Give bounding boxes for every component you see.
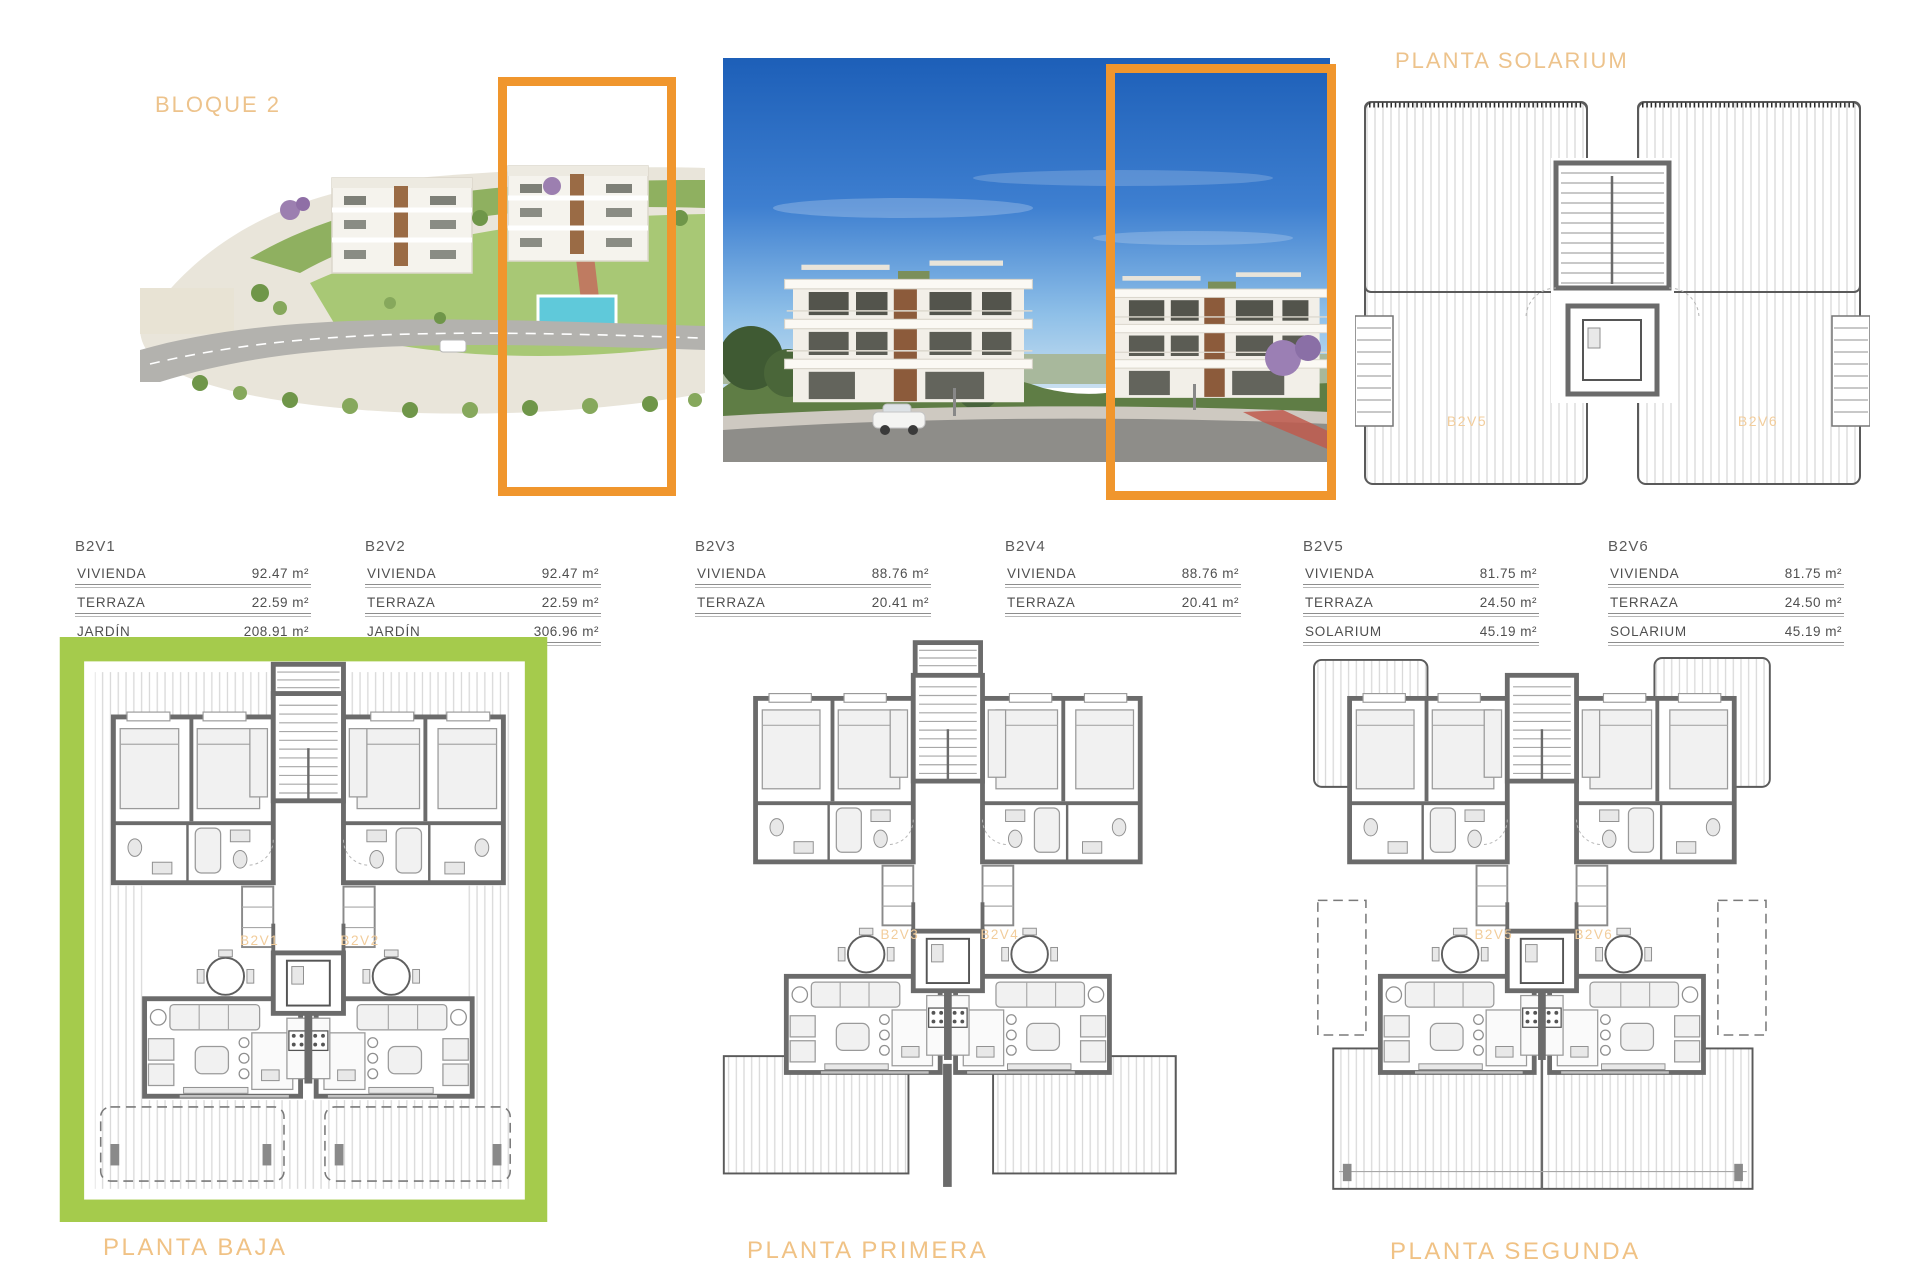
table-row: TERRAZA 22.59 m²	[75, 591, 311, 614]
row-value: 92.47 m²	[252, 566, 309, 581]
open-terrace-outline	[1718, 900, 1766, 1035]
row-label: TERRAZA	[1305, 595, 1374, 610]
unit-table-b2v4: B2V4 VIVIENDA 88.76 m² TERRAZA 20.41 m²	[1005, 538, 1241, 620]
unit-name: B2V4	[1005, 538, 1241, 555]
table-row: VIVIENDA 88.76 m²	[1005, 562, 1241, 585]
planta-baja-caption: PLANTA BAJA	[103, 1234, 287, 1262]
unit-label: B2V6	[1575, 927, 1614, 942]
unit-label: B2V3	[880, 927, 919, 942]
table-row: TERRAZA 20.41 m²	[1005, 591, 1241, 614]
table-row: VIVIENDA 81.75 m²	[1608, 562, 1844, 585]
row-label: VIVIENDA	[697, 566, 766, 581]
unit-table-b2v3: B2V3 VIVIENDA 88.76 m² TERRAZA 20.41 m²	[695, 538, 931, 620]
unit-label: B2V2	[340, 933, 379, 948]
solarium-floor-plan: B2V5 B2V6	[1355, 88, 1870, 508]
unit-table-b2v1: B2V1 VIVIENDA 92.47 m² TERRAZA 22.59 m² …	[75, 538, 311, 649]
page: BLOQUE 2	[0, 0, 1920, 1280]
unit-table-b2v2: B2V2 VIVIENDA 92.47 m² TERRAZA 22.59 m² …	[365, 538, 601, 649]
table-row: TERRAZA 20.41 m²	[695, 591, 931, 614]
row-value: 22.59 m²	[252, 595, 309, 610]
unit-name: B2V3	[695, 538, 931, 555]
row-label: TERRAZA	[1610, 595, 1679, 610]
table-row: VIVIENDA 88.76 m²	[695, 562, 931, 585]
row-label: TERRAZA	[697, 595, 766, 610]
solarium-heading: PLANTA SOLARIUM	[1395, 48, 1629, 74]
unit-label: B2V1	[240, 933, 279, 948]
row-label: TERRAZA	[77, 595, 146, 610]
unit-label: B2V5	[1474, 927, 1513, 942]
planta-segunda-floor-plan: B2V5 B2V6	[1295, 633, 1885, 1210]
row-value: 81.75 m²	[1480, 566, 1537, 581]
row-label: TERRAZA	[367, 595, 436, 610]
unit-label: B2V6	[1738, 413, 1778, 429]
highlight-rect-site	[498, 77, 676, 496]
highlight-rect-photo	[1106, 64, 1336, 500]
row-label: VIVIENDA	[1610, 566, 1679, 581]
row-label: TERRAZA	[1007, 595, 1076, 610]
open-terrace-outline	[1318, 900, 1366, 1035]
planta-primera-caption: PLANTA PRIMERA	[747, 1237, 988, 1265]
unit-name: B2V2	[365, 538, 601, 555]
row-label: VIVIENDA	[1305, 566, 1374, 581]
row-label: VIVIENDA	[77, 566, 146, 581]
row-value: 88.76 m²	[1182, 566, 1239, 581]
table-row: TERRAZA 22.59 m²	[365, 591, 601, 614]
row-value: 20.41 m²	[1182, 595, 1239, 610]
planta-baja-floor-plan: B2V1 B2V2	[55, 637, 552, 1222]
unit-name: B2V1	[75, 538, 311, 555]
unit-label: B2V5	[1447, 413, 1487, 429]
table-row: VIVIENDA 92.47 m²	[365, 562, 601, 585]
planta-segunda-caption: PLANTA SEGUNDA	[1390, 1238, 1641, 1266]
row-value: 88.76 m²	[872, 566, 929, 581]
aerial-car	[440, 340, 466, 352]
table-row: VIVIENDA 92.47 m²	[75, 562, 311, 585]
row-label: VIVIENDA	[1007, 566, 1076, 581]
row-value: 22.59 m²	[542, 595, 599, 610]
row-value: 24.50 m²	[1480, 595, 1537, 610]
unit-name: B2V5	[1303, 538, 1539, 555]
table-row: TERRAZA 24.50 m²	[1608, 591, 1844, 614]
unit-label: B2V4	[980, 927, 1019, 942]
row-value: 24.50 m²	[1785, 595, 1842, 610]
planta-primera-floor-plan: B2V3 B2V4	[700, 633, 1190, 1210]
unit-name: B2V6	[1608, 538, 1844, 555]
row-value: 20.41 m²	[872, 595, 929, 610]
table-row: TERRAZA 24.50 m²	[1303, 591, 1539, 614]
row-value: 92.47 m²	[542, 566, 599, 581]
table-row: VIVIENDA 81.75 m²	[1303, 562, 1539, 585]
row-value: 81.75 m²	[1785, 566, 1842, 581]
row-label: VIVIENDA	[367, 566, 436, 581]
